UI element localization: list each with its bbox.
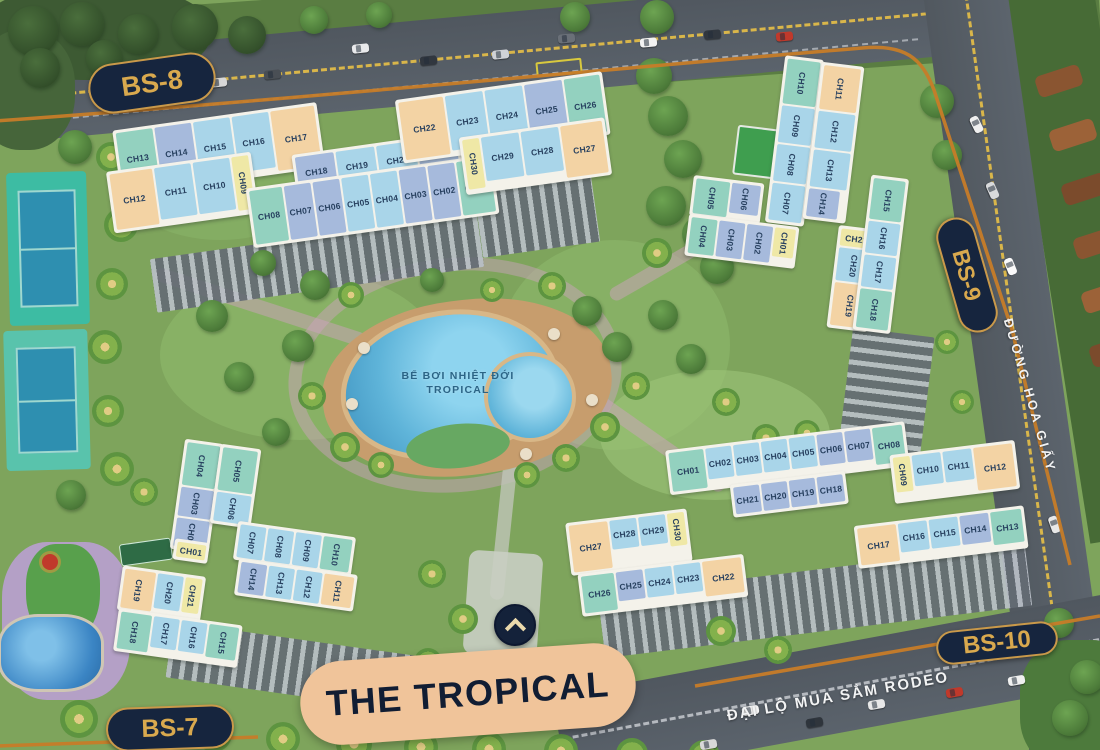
unit-ch16[interactable]: CH16 bbox=[178, 620, 208, 654]
unit-label: CH08 bbox=[785, 152, 798, 176]
tree bbox=[646, 186, 686, 226]
unit-label: CH02 bbox=[708, 456, 732, 469]
unit-ch16[interactable]: CH16 bbox=[898, 520, 930, 552]
umbrella bbox=[586, 394, 598, 406]
palm-tree bbox=[100, 452, 134, 486]
tree bbox=[60, 2, 104, 46]
unit-ch12[interactable]: CH12 bbox=[293, 570, 323, 604]
unit-ch21[interactable]: CH21 bbox=[181, 577, 203, 614]
project-title: THE TROPICAL bbox=[325, 663, 611, 725]
palm-tree bbox=[96, 268, 128, 300]
unit-label: CH26 bbox=[573, 99, 597, 112]
unit-label: CH11 bbox=[947, 459, 970, 472]
unit-label: CH01 bbox=[179, 545, 203, 558]
unit-label: CH05 bbox=[231, 459, 244, 483]
tree bbox=[366, 2, 392, 28]
unit-label: CH17 bbox=[872, 260, 885, 284]
unit-label: CH04 bbox=[764, 449, 788, 462]
unit-label: CH06 bbox=[819, 443, 843, 456]
unit-label: CH23 bbox=[676, 572, 700, 585]
unit-label: CH24 bbox=[495, 109, 519, 122]
palm-tree bbox=[764, 636, 792, 664]
unit-ch14[interactable]: CH14 bbox=[959, 513, 991, 545]
unit-label: CH22 bbox=[712, 571, 736, 584]
unit-label: CH12 bbox=[301, 575, 314, 599]
unit-label: CH13 bbox=[996, 521, 1020, 534]
palm-tree bbox=[538, 272, 566, 300]
building-bs10-wing: CH09CH10CH11CH12 bbox=[889, 440, 1020, 504]
unit-label: CH12 bbox=[123, 193, 147, 206]
tree bbox=[636, 58, 672, 94]
tree bbox=[300, 6, 328, 34]
unit-label: CH10 bbox=[795, 71, 808, 95]
unit-label: CH02 bbox=[752, 232, 765, 256]
tree bbox=[118, 14, 158, 54]
unit-label: CH03 bbox=[189, 491, 202, 515]
unit-label: CH15 bbox=[203, 141, 227, 154]
unit-ch06[interactable]: CH06 bbox=[213, 492, 252, 526]
unit-ch10[interactable]: CH10 bbox=[782, 59, 820, 108]
unit-ch20[interactable]: CH20 bbox=[153, 573, 184, 611]
unit-label: CH05 bbox=[346, 197, 370, 210]
tree bbox=[224, 362, 254, 392]
unit-label: CH12 bbox=[983, 461, 1007, 474]
unit-label: CH14 bbox=[964, 523, 988, 536]
tree bbox=[282, 330, 314, 362]
building-bs9: CH10CH09CH08CH07CH11CH12CH13CH14CH05CH06… bbox=[676, 46, 924, 350]
unit-label: CH01 bbox=[676, 464, 700, 477]
unit-ch12[interactable]: CH12 bbox=[109, 169, 159, 230]
unit-label: CH13 bbox=[274, 571, 287, 595]
unit-ch21[interactable]: CH21 bbox=[733, 484, 762, 514]
unit-label: CH18 bbox=[305, 165, 329, 178]
unit-ch16[interactable]: CH16 bbox=[865, 221, 901, 257]
unit-label: CH03 bbox=[724, 228, 737, 252]
unit-ch17[interactable]: CH17 bbox=[861, 254, 897, 290]
unit-label: CH15 bbox=[933, 526, 957, 539]
unit-label: CH07 bbox=[289, 205, 313, 218]
palm-tree bbox=[706, 616, 736, 646]
unit-ch18[interactable]: CH18 bbox=[856, 288, 893, 331]
palm-tree bbox=[950, 390, 974, 414]
unit-label: CH11 bbox=[164, 185, 187, 198]
unit-ch08[interactable]: CH08 bbox=[264, 528, 294, 564]
unit-label: CH26 bbox=[588, 587, 612, 600]
unit-label: CH27 bbox=[573, 143, 597, 156]
unit-ch12[interactable]: CH12 bbox=[973, 443, 1017, 490]
unit-label: CH15 bbox=[216, 630, 229, 654]
unit-ch18[interactable]: CH18 bbox=[816, 474, 845, 504]
tree bbox=[196, 300, 228, 332]
unit-ch01[interactable]: CH01 bbox=[668, 449, 707, 492]
tree bbox=[20, 48, 60, 88]
unit-ch24[interactable]: CH24 bbox=[644, 566, 674, 598]
unit-label: CH17 bbox=[867, 538, 891, 551]
unit-label: CH30 bbox=[671, 517, 684, 541]
unit-ch13[interactable]: CH13 bbox=[810, 149, 851, 190]
unit-label: CH19 bbox=[132, 578, 145, 602]
unit-ch27[interactable]: CH27 bbox=[568, 521, 612, 572]
palm-tree bbox=[712, 388, 740, 416]
palm-tree bbox=[92, 395, 124, 427]
unit-ch09[interactable]: CH09 bbox=[893, 456, 914, 493]
unit-label: CH14 bbox=[246, 567, 259, 591]
pool-label: BỂ BƠI NHIỆT ĐỚI TROPICAL bbox=[390, 369, 526, 397]
unit-label: CH25 bbox=[535, 103, 559, 116]
unit-label: CH21 bbox=[185, 584, 198, 608]
unit-label: CH30 bbox=[467, 152, 480, 176]
unit-ch03[interactable]: CH03 bbox=[715, 220, 745, 259]
tree bbox=[172, 4, 218, 50]
unit-ch08[interactable]: CH08 bbox=[773, 144, 810, 185]
unit-label: CH24 bbox=[648, 575, 672, 588]
unit-label: CH04 bbox=[195, 454, 208, 478]
unit-ch11[interactable]: CH11 bbox=[320, 573, 354, 608]
unit-label: CH16 bbox=[876, 227, 889, 251]
car bbox=[492, 49, 510, 60]
unit-label: CH21 bbox=[736, 493, 760, 506]
unit-label: CH18 bbox=[819, 483, 843, 496]
tennis-court bbox=[6, 171, 90, 326]
unit-label: CH05 bbox=[705, 186, 718, 210]
unit-ch02[interactable]: CH02 bbox=[743, 224, 773, 263]
unit-label: CH05 bbox=[791, 446, 815, 459]
tree bbox=[676, 344, 706, 374]
unit-label: CH22 bbox=[413, 122, 437, 135]
kids-pool bbox=[0, 614, 104, 692]
unit-label: CH07 bbox=[780, 191, 793, 215]
unit-ch01[interactable]: CH01 bbox=[176, 542, 207, 561]
unit-ch03[interactable]: CH03 bbox=[733, 442, 763, 476]
tree bbox=[932, 140, 962, 170]
site-masterplan: BỂ BƠI NHIỆT ĐỚI TROPICAL CH13CH14CH15CH… bbox=[0, 0, 1100, 750]
palm-tree bbox=[514, 462, 540, 488]
unit-ch27[interactable]: CH27 bbox=[560, 121, 609, 178]
unit-label: CH08 bbox=[273, 534, 286, 558]
unit-ch05[interactable]: CH05 bbox=[788, 435, 818, 469]
unit-ch07[interactable]: CH07 bbox=[236, 524, 266, 560]
car bbox=[352, 43, 370, 54]
umbrella bbox=[346, 398, 358, 410]
palm-tree bbox=[266, 722, 300, 750]
chevron-up-icon bbox=[504, 618, 525, 639]
building-bs7: CH04CH03CH02CH05CH06CH01CH07CH08CH09CH10… bbox=[109, 432, 407, 687]
palm-tree bbox=[88, 330, 122, 364]
unit-label: CH13 bbox=[824, 158, 837, 182]
unit-ch10[interactable]: CH10 bbox=[192, 158, 236, 215]
palm-tree bbox=[622, 372, 650, 400]
unit-ch08[interactable]: CH08 bbox=[249, 187, 289, 245]
unit-ch30[interactable]: CH30 bbox=[667, 512, 688, 547]
unit-ch19[interactable]: CH19 bbox=[120, 569, 156, 612]
tree bbox=[572, 296, 602, 326]
unit-label: CH18 bbox=[128, 620, 141, 644]
unit-label: CH04 bbox=[696, 225, 709, 249]
unit-label: CH29 bbox=[491, 150, 515, 163]
tree bbox=[58, 130, 92, 164]
badge-bs9-label: BS-9 bbox=[947, 246, 987, 304]
tree bbox=[262, 418, 290, 446]
building-bs10-wing: CH17CH16CH15CH14CH13 bbox=[854, 505, 1029, 569]
tree bbox=[1070, 660, 1100, 694]
unit-label: CH04 bbox=[375, 193, 399, 206]
badge-bs7[interactable]: BS-7 bbox=[105, 704, 234, 750]
unit-label: CH18 bbox=[868, 298, 881, 322]
badge-bs10-label: BS-10 bbox=[962, 626, 1033, 661]
unit-label: CH06 bbox=[226, 497, 239, 521]
unit-label: CH09 bbox=[897, 462, 910, 486]
unit-ch22[interactable]: CH22 bbox=[398, 97, 451, 161]
unit-label: CH11 bbox=[331, 579, 344, 602]
unit-label: CH10 bbox=[203, 179, 227, 192]
unit-ch10[interactable]: CH10 bbox=[319, 536, 352, 573]
unit-ch17[interactable]: CH17 bbox=[150, 616, 180, 650]
unit-label: CH25 bbox=[619, 579, 643, 592]
tree bbox=[920, 84, 954, 118]
umbrella bbox=[520, 448, 532, 460]
unit-ch11[interactable]: CH11 bbox=[942, 448, 975, 482]
unit-ch29[interactable]: CH29 bbox=[481, 132, 525, 181]
tennis-court bbox=[3, 329, 91, 471]
unit-ch22[interactable]: CH22 bbox=[702, 557, 745, 596]
unit-ch12[interactable]: CH12 bbox=[814, 111, 855, 152]
palm-tree bbox=[60, 700, 98, 738]
unit-ch02[interactable]: CH02 bbox=[705, 446, 735, 480]
tree bbox=[300, 270, 330, 300]
pool-label-line2: TROPICAL bbox=[390, 383, 526, 397]
building-bs7-wing: CH18CH17CH16CH15 bbox=[113, 608, 243, 668]
tree bbox=[648, 300, 678, 330]
car bbox=[420, 55, 438, 66]
unit-label: CH09 bbox=[300, 538, 313, 562]
umbrella bbox=[358, 342, 370, 354]
unit-ch25[interactable]: CH25 bbox=[616, 569, 646, 601]
unit-label: CH28 bbox=[613, 527, 637, 540]
unit-label: CH03 bbox=[736, 453, 760, 466]
unit-ch13[interactable]: CH13 bbox=[265, 566, 295, 600]
unit-ch20[interactable]: CH20 bbox=[761, 481, 790, 511]
unit-label: CH17 bbox=[284, 132, 308, 145]
unit-label: CH28 bbox=[530, 145, 554, 158]
unit-ch04[interactable]: CH04 bbox=[687, 217, 717, 256]
unit-label: CH09 bbox=[790, 114, 803, 138]
unit-label: CH06 bbox=[739, 188, 752, 212]
palm-tree bbox=[298, 382, 326, 410]
palm-tree bbox=[480, 278, 504, 302]
unit-label: CH11 bbox=[834, 78, 847, 101]
pool-label-line1: BỂ BƠI NHIỆT ĐỚI bbox=[390, 369, 526, 383]
unit-label: CH10 bbox=[916, 463, 940, 476]
unit-label: CH01 bbox=[778, 231, 791, 255]
building-bs9-wing: CH15CH16CH17CH18 bbox=[852, 175, 909, 334]
tree bbox=[648, 96, 688, 136]
unit-ch05[interactable]: CH05 bbox=[692, 178, 730, 217]
unit-label: CH23 bbox=[455, 114, 479, 127]
tree bbox=[602, 332, 632, 362]
unit-ch15[interactable]: CH15 bbox=[928, 516, 960, 548]
tree bbox=[420, 268, 444, 292]
unit-ch26[interactable]: CH26 bbox=[581, 573, 618, 614]
car bbox=[558, 33, 576, 43]
tree bbox=[1052, 700, 1088, 736]
unit-ch23[interactable]: CH23 bbox=[673, 562, 703, 594]
unit-ch17[interactable]: CH17 bbox=[857, 524, 900, 565]
unit-ch07[interactable]: CH07 bbox=[844, 428, 874, 462]
unit-label: CH29 bbox=[641, 524, 665, 537]
unit-ch18[interactable]: CH18 bbox=[116, 612, 152, 653]
unit-ch09[interactable]: CH09 bbox=[292, 532, 322, 568]
unit-ch29[interactable]: CH29 bbox=[638, 514, 668, 546]
unit-label: CH16 bbox=[902, 530, 926, 543]
unit-ch11[interactable]: CH11 bbox=[154, 163, 198, 220]
unit-ch06[interactable]: CH06 bbox=[816, 432, 846, 466]
unit-ch15[interactable]: CH15 bbox=[869, 178, 906, 223]
unit-label: CH27 bbox=[579, 541, 603, 554]
palm-tree bbox=[448, 604, 478, 634]
car bbox=[264, 69, 282, 80]
unit-label: CH08 bbox=[877, 438, 901, 451]
unit-ch03[interactable]: CH03 bbox=[177, 487, 214, 520]
unit-label: CH14 bbox=[817, 192, 830, 216]
car bbox=[704, 29, 722, 39]
palm-tree bbox=[330, 432, 360, 462]
tree bbox=[228, 16, 266, 54]
unit-label: CH16 bbox=[242, 136, 266, 149]
tree bbox=[640, 0, 674, 34]
unit-label: CH08 bbox=[257, 209, 281, 222]
unit-label: CH10 bbox=[330, 542, 343, 566]
unit-label: CH20 bbox=[764, 490, 788, 503]
unit-ch14[interactable]: CH14 bbox=[237, 562, 267, 596]
unit-label: CH06 bbox=[318, 201, 342, 214]
unit-ch10[interactable]: CH10 bbox=[911, 452, 944, 486]
unit-ch01[interactable]: CH01 bbox=[772, 227, 796, 258]
palm-tree bbox=[642, 238, 672, 268]
badge-bs7-label: BS-7 bbox=[141, 713, 199, 744]
playground-equipment bbox=[42, 554, 58, 570]
unit-ch06[interactable]: CH06 bbox=[729, 183, 761, 216]
unit-label: CH16 bbox=[186, 625, 199, 649]
unit-label: CH13 bbox=[126, 152, 150, 165]
unit-ch05[interactable]: CH05 bbox=[217, 447, 258, 494]
unit-ch28[interactable]: CH28 bbox=[609, 518, 639, 550]
unit-label: CH19 bbox=[345, 159, 369, 172]
unit-ch15[interactable]: CH15 bbox=[205, 624, 239, 661]
palm-tree bbox=[418, 560, 446, 588]
unit-ch19[interactable]: CH19 bbox=[789, 478, 818, 508]
palm-tree bbox=[590, 412, 620, 442]
tree bbox=[560, 2, 590, 32]
unit-ch13[interactable]: CH13 bbox=[990, 509, 1025, 546]
unit-ch11[interactable]: CH11 bbox=[819, 65, 861, 113]
unit-ch07[interactable]: CH07 bbox=[768, 183, 805, 224]
expand-button[interactable] bbox=[494, 604, 536, 646]
unit-label: CH15 bbox=[881, 188, 894, 212]
unit-ch28[interactable]: CH28 bbox=[520, 127, 564, 176]
unit-label: CH14 bbox=[165, 146, 189, 159]
unit-label: CH17 bbox=[158, 621, 171, 645]
unit-label: CH20 bbox=[162, 581, 175, 605]
building-bs7-wing: CH01 bbox=[172, 538, 210, 564]
badge-bs8-label: BS-8 bbox=[119, 63, 184, 102]
unit-label: CH20 bbox=[847, 254, 860, 278]
unit-ch14[interactable]: CH14 bbox=[806, 188, 840, 220]
palm-tree bbox=[338, 282, 364, 308]
unit-ch09[interactable]: CH09 bbox=[778, 105, 815, 146]
umbrella bbox=[548, 328, 560, 340]
car bbox=[640, 37, 658, 47]
palm-tree bbox=[935, 330, 959, 354]
unit-label: CH19 bbox=[791, 486, 815, 499]
car bbox=[776, 31, 794, 41]
tree bbox=[56, 480, 86, 510]
unit-label: CH07 bbox=[245, 531, 258, 555]
unit-label: CH12 bbox=[829, 120, 842, 144]
unit-ch04[interactable]: CH04 bbox=[761, 439, 791, 473]
unit-label: CH07 bbox=[847, 439, 871, 452]
